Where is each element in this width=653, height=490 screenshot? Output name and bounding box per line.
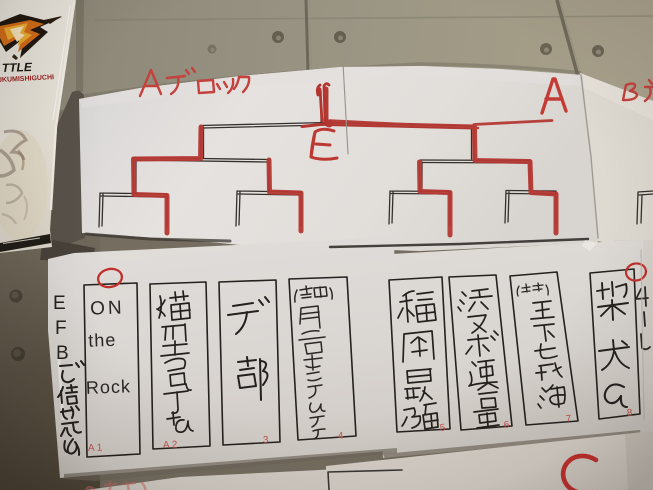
svg-text:8: 8 (626, 408, 633, 419)
svg-text:7: 7 (565, 414, 572, 425)
svg-text:A 1: A 1 (88, 442, 103, 454)
svg-text:E: E (53, 293, 66, 314)
svg-text:4: 4 (338, 431, 345, 442)
svg-text:ON: ON (90, 297, 125, 319)
svg-text:F: F (55, 318, 67, 339)
svg-text:the: the (88, 330, 117, 351)
svg-text:B: B (56, 343, 69, 364)
svg-text:Rock: Rock (86, 376, 132, 398)
svg-text:A 2: A 2 (163, 439, 178, 451)
svg-text:6: 6 (503, 420, 510, 431)
svg-text:3: 3 (263, 435, 269, 446)
svg-text:5: 5 (439, 423, 446, 434)
